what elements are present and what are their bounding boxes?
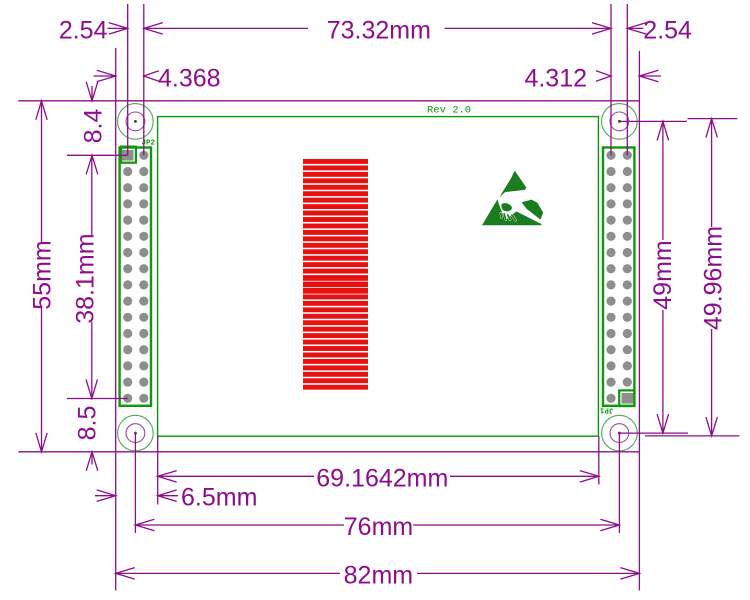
svg-text:82mm: 82mm (344, 561, 413, 589)
svg-text:49mm: 49mm (649, 240, 677, 309)
svg-text:4.368: 4.368 (158, 64, 221, 92)
svg-text:8.4: 8.4 (79, 109, 107, 144)
svg-text:69.1642mm: 69.1642mm (316, 464, 448, 492)
svg-text:2.54: 2.54 (643, 17, 692, 45)
svg-text:JP1: JP1 (599, 406, 613, 414)
svg-text:38.1mm: 38.1mm (72, 233, 100, 323)
svg-text:Rev 2.0: Rev 2.0 (427, 105, 471, 117)
svg-text:73.32mm: 73.32mm (327, 17, 431, 45)
svg-text:55mm: 55mm (29, 240, 57, 309)
svg-text:76mm: 76mm (344, 513, 413, 541)
svg-text:4.312: 4.312 (524, 64, 587, 92)
svg-text:6.5mm: 6.5mm (181, 484, 257, 512)
svg-text:2.54: 2.54 (59, 17, 108, 45)
svg-text:49.96mm: 49.96mm (700, 226, 728, 330)
svg-text:8.5: 8.5 (74, 406, 102, 441)
